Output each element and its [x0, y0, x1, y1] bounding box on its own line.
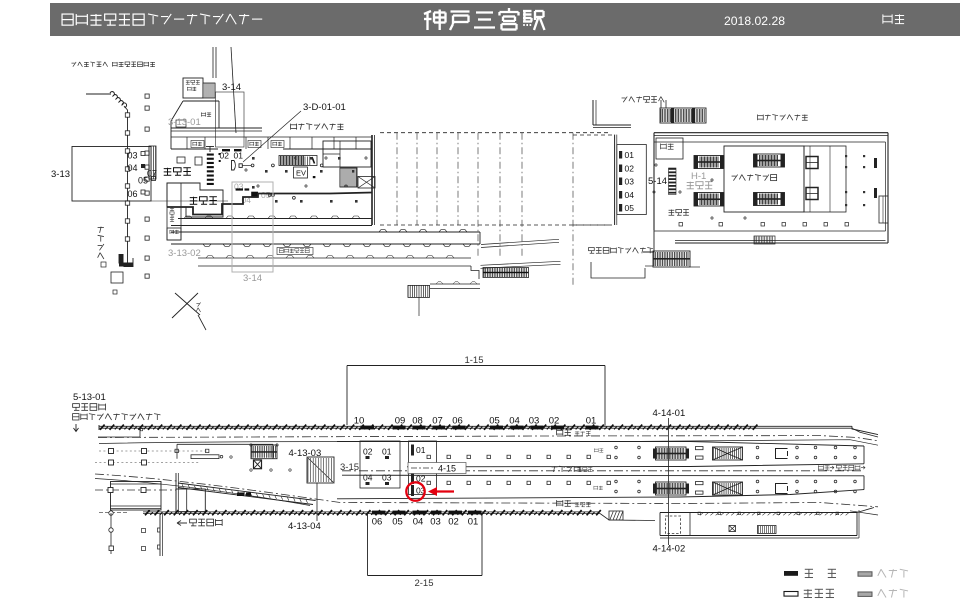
svg-text:04: 04	[413, 517, 424, 528]
svg-text:06: 06	[372, 517, 383, 528]
svg-text:04: 04	[509, 416, 520, 427]
svg-text:3-13: 3-13	[51, 169, 70, 180]
svg-text:3-15: 3-15	[340, 462, 359, 473]
svg-text:03: 03	[625, 177, 635, 187]
svg-text:4-13-04: 4-13-04	[288, 521, 321, 532]
svg-text:02: 02	[448, 517, 459, 528]
svg-text:1-15: 1-15	[464, 355, 483, 366]
svg-text:01: 01	[234, 151, 244, 161]
svg-text:5-13-01: 5-13-01	[73, 392, 106, 403]
svg-text:01: 01	[416, 445, 426, 455]
svg-text:06: 06	[128, 189, 138, 199]
svg-text:05: 05	[392, 517, 403, 528]
svg-text:3-13-02: 3-13-02	[168, 248, 201, 259]
svg-text:4-14-01: 4-14-01	[653, 408, 686, 419]
svg-text:3-14: 3-14	[243, 273, 262, 284]
svg-text:03: 03	[430, 517, 441, 528]
svg-text:10: 10	[354, 416, 365, 427]
svg-text:04: 04	[363, 473, 373, 483]
svg-text:3-13-01: 3-13-01	[168, 117, 201, 128]
svg-text:03: 03	[128, 151, 138, 161]
svg-text:3-14: 3-14	[222, 82, 241, 93]
svg-text:2-15: 2-15	[414, 578, 433, 589]
svg-text:08: 08	[412, 416, 423, 427]
svg-text:01: 01	[586, 416, 597, 427]
svg-text:4-15: 4-15	[438, 464, 456, 474]
svg-text:05: 05	[625, 203, 635, 213]
svg-text:05: 05	[261, 190, 271, 200]
svg-text:06: 06	[452, 416, 463, 427]
svg-text:04: 04	[625, 190, 635, 200]
svg-text:2018.02.28: 2018.02.28	[724, 14, 785, 28]
svg-text:01: 01	[468, 517, 479, 528]
svg-text:02: 02	[220, 151, 230, 161]
svg-text:02: 02	[625, 164, 635, 174]
svg-text:3-D-01-01: 3-D-01-01	[303, 102, 346, 113]
svg-text:03: 03	[382, 473, 392, 483]
svg-text:EV: EV	[296, 169, 306, 178]
svg-text:01: 01	[625, 150, 635, 160]
svg-text:04: 04	[128, 163, 138, 173]
svg-text:H-1: H-1	[691, 171, 706, 182]
svg-text:5-14: 5-14	[648, 176, 667, 187]
svg-text:02: 02	[363, 447, 373, 457]
svg-text:07: 07	[432, 416, 443, 427]
svg-text:05: 05	[489, 416, 500, 427]
svg-text:02: 02	[549, 416, 560, 427]
svg-text:03: 03	[529, 416, 540, 427]
svg-text:01: 01	[382, 447, 392, 457]
svg-text:09: 09	[395, 416, 406, 427]
svg-text:4-14-02: 4-14-02	[653, 544, 686, 555]
